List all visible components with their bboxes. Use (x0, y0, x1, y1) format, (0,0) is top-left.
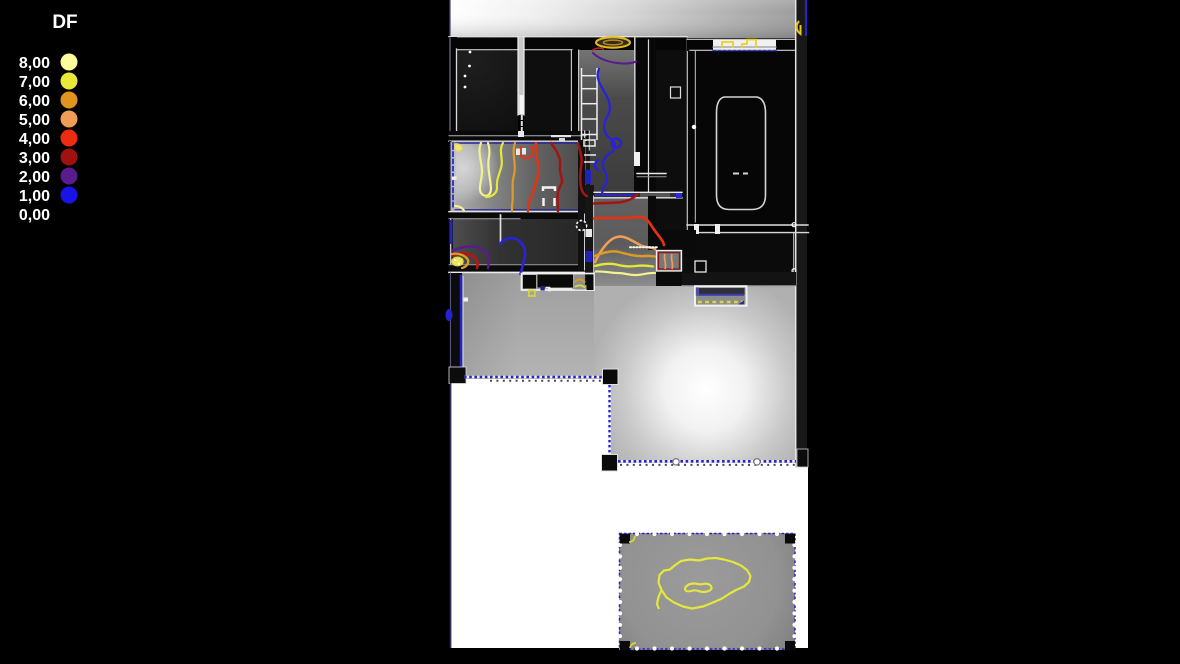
svg-text:7,00: 7,00 (19, 74, 50, 91)
svg-text:4,00: 4,00 (19, 131, 50, 148)
svg-text:8,00: 8,00 (19, 55, 50, 72)
svg-text:1,00: 1,00 (19, 188, 50, 205)
svg-text:2,00: 2,00 (19, 169, 50, 186)
svg-text:3,00: 3,00 (19, 150, 50, 167)
svg-text:5,00: 5,00 (19, 112, 50, 129)
svg-text:0,00: 0,00 (19, 207, 50, 224)
svg-text:DF: DF (52, 12, 77, 33)
svg-text:6,00: 6,00 (19, 93, 50, 110)
